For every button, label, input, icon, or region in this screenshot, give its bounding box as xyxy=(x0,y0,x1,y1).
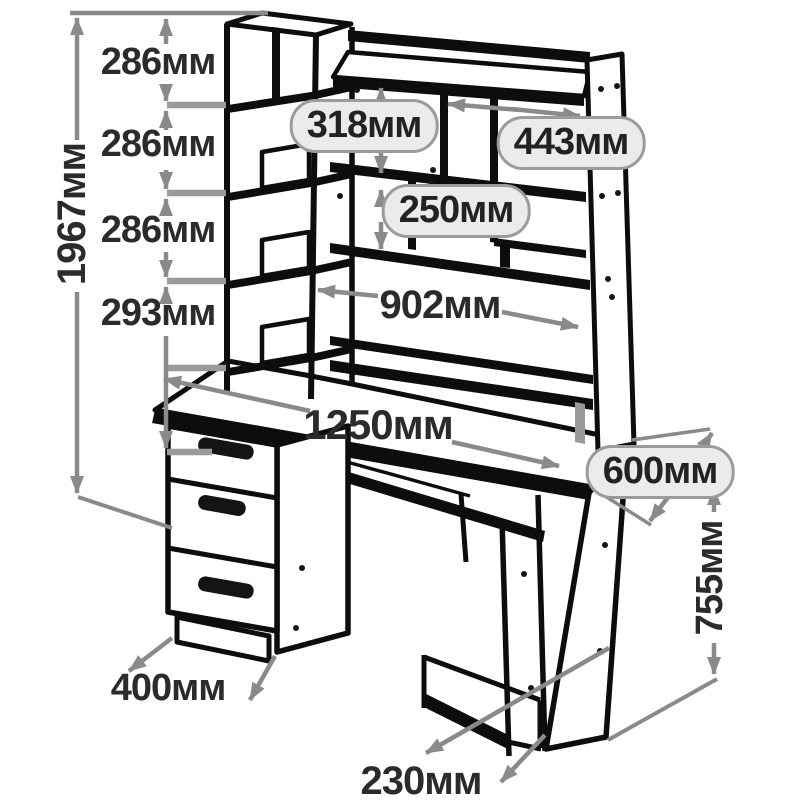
dimension-drawing: 286мм 286мм 286мм 293мм 1967мм 318мм 443… xyxy=(0,0,794,800)
hutch-panel-shadow xyxy=(575,402,585,444)
dim-pill-443: 443мм xyxy=(497,116,646,170)
tower-top-face xyxy=(227,13,351,35)
tower-stiffener-2 xyxy=(262,232,309,276)
niche-width-dimension xyxy=(448,104,580,116)
tower-stiffener-3 xyxy=(262,319,309,363)
dim-label-gap-3: 286мм xyxy=(101,211,216,249)
dim-pill-250: 250мм xyxy=(382,184,531,238)
pedestal-front-face xyxy=(168,426,277,631)
pedestal-side-face xyxy=(277,426,348,652)
dim-pill-318: 318мм xyxy=(290,99,439,153)
dim-pill-600: 600мм xyxy=(586,445,735,499)
drawer-pedestal xyxy=(168,426,348,661)
dim-label-755: 755мм xyxy=(691,521,729,636)
dim-label-400: 400мм xyxy=(111,669,226,707)
tower-top-divider xyxy=(272,27,280,101)
dim-label-1250: 1250мм xyxy=(303,404,453,446)
dim-label-230: 230мм xyxy=(361,761,482,800)
cpu-stand-top-edge xyxy=(424,657,540,700)
dim-label-gap-2: 286мм xyxy=(101,125,216,163)
cpu-stand-lip xyxy=(424,694,508,748)
rear-upright-left xyxy=(461,494,466,562)
dim-label-gap-1: 286мм xyxy=(101,43,216,81)
hutch-shelf-d-support xyxy=(500,246,510,268)
hutch-divider-top xyxy=(440,90,448,178)
dim-label-902: 902мм xyxy=(380,285,501,325)
tower-stiffener-1 xyxy=(262,144,309,188)
rear-upright-mid xyxy=(502,520,509,756)
tower-front-right-edge xyxy=(311,35,316,399)
dim-label-gap-4: 293мм xyxy=(101,294,216,332)
dim-label-total-height: 1967мм xyxy=(52,143,92,285)
hutch-right-panel xyxy=(587,54,634,451)
cpu-stand xyxy=(424,655,541,749)
